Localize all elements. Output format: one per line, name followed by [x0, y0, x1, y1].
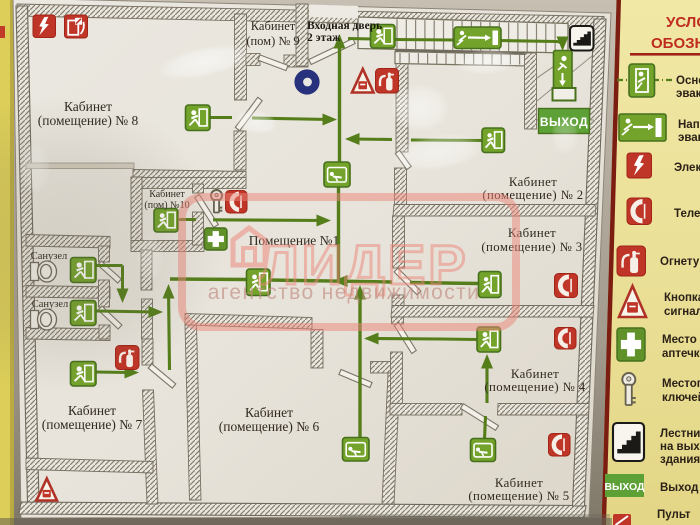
svg-text:Место распол: Место распол	[662, 334, 700, 346]
svg-text:Кнопка пожар: Кнопка пожар	[664, 292, 700, 304]
svg-text:эвакуации: эвакуации	[678, 132, 700, 144]
svg-text:Кабинет: Кабинет	[68, 403, 116, 418]
svg-text:ключей от по: ключей от по	[662, 392, 700, 404]
svg-text:УСЛОВНЫЕ: УСЛОВНЫЕ	[666, 14, 700, 31]
svg-text:(помещение) № 5: (помещение) № 5	[468, 489, 569, 503]
svg-text:агентство недвижимости: агентство недвижимости	[208, 281, 481, 304]
svg-text:Пульт: Пульт	[657, 509, 691, 521]
svg-text:ВЫХОД: ВЫХОД	[604, 481, 645, 493]
svg-text:(помещение) № 7: (помещение) № 7	[42, 417, 143, 432]
svg-text:Основной: Основной	[676, 75, 700, 87]
svg-text:Кабинет: Кабинет	[245, 405, 293, 420]
svg-text:Кабинет: Кабинет	[511, 367, 559, 381]
svg-text:2 этаж: 2 этаж	[307, 32, 341, 44]
svg-text:сигнализации: сигнализации	[664, 306, 700, 318]
svg-text:Выход из зда: Выход из зда	[660, 482, 700, 494]
svg-text:эвакуационны: эвакуационны	[676, 88, 700, 100]
svg-text:(помещение) № 6: (помещение) № 6	[219, 419, 320, 434]
svg-text:Лестница вед: Лестница вед	[660, 428, 700, 440]
svg-text:Направление: Направление	[678, 119, 700, 131]
svg-text:аптечки перв: аптечки перв	[662, 348, 700, 360]
svg-text:Огнетушител: Огнетушител	[660, 256, 700, 268]
svg-text:Местоположе: Местоположе	[662, 378, 700, 390]
svg-text:ОБОЗНАЧЕНИЯ: ОБОЗНАЧЕНИЯ	[651, 35, 700, 52]
svg-text:Телефон: Телефон	[674, 208, 700, 220]
svg-text:Кабинет: Кабинет	[509, 175, 557, 189]
svg-text:на выход из: на выход из	[660, 441, 700, 453]
svg-text:Кабинет: Кабинет	[495, 476, 543, 490]
svg-text:Кабинет: Кабинет	[251, 19, 296, 33]
svg-text:(помещение) № 4: (помещение) № 4	[484, 380, 585, 394]
svg-text:Входная дверь: Входная дверь	[307, 20, 382, 32]
svg-text:(пом) № 9: (пом) № 9	[246, 34, 299, 48]
svg-text:Электрощит: Электрощит	[674, 162, 700, 174]
svg-text:(помещение) № 3: (помещение) № 3	[481, 240, 582, 254]
svg-text:здания: здания	[660, 454, 700, 466]
